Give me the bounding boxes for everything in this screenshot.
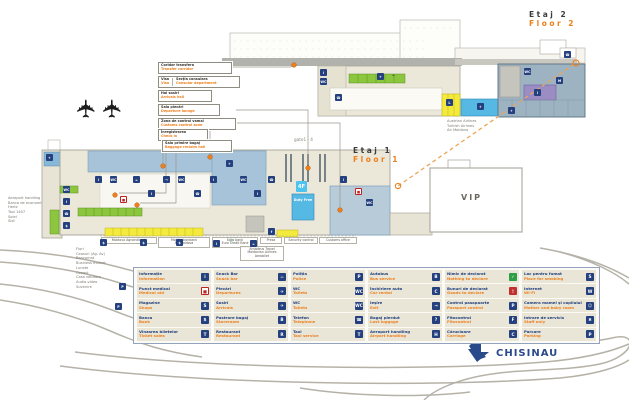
legend-item-fitocontrol: FitocontrolFitocontrolF bbox=[445, 313, 519, 326]
information-icon: i bbox=[201, 273, 209, 281]
legend-item-snack-bar: Snack BarSnack bar☕ bbox=[214, 270, 288, 283]
legend-item-luggage-storage: Pastrare bagajStoreroomB bbox=[214, 313, 288, 326]
map-wc-icon: WC bbox=[366, 199, 373, 206]
legend-item-departures: PlecăriDepartures✈ bbox=[214, 284, 288, 297]
map-departures-icon: ✈ bbox=[508, 107, 515, 114]
bank-icon: $ bbox=[201, 316, 209, 324]
legend-item-medical-aid: Punct medicalMedical aid■ bbox=[137, 284, 211, 297]
lost-luggage-icon: ? bbox=[432, 316, 440, 324]
map-wc-icon: WC bbox=[524, 68, 531, 75]
legend-item-wc-men: WCToiletsWC bbox=[291, 284, 365, 297]
list-line: Sixt bbox=[8, 219, 60, 224]
legend-label: Snack BarSnack bar bbox=[216, 272, 238, 281]
legend-column-4: AutobusBus serviceBÎnchiriere autoCar re… bbox=[368, 270, 442, 341]
map-information-icon: i bbox=[534, 89, 541, 96]
map-telephone-icon: ☎ bbox=[63, 210, 70, 217]
map-snack-bar-icon: ☕ bbox=[390, 71, 397, 78]
legend-label: WCToilets bbox=[293, 301, 307, 310]
callout-4: Sala plecăriDeparture lounge bbox=[158, 104, 220, 116]
telephone-icon: ☎ bbox=[355, 316, 363, 324]
legend-item-information: InformațieInformationi bbox=[137, 270, 211, 283]
map-bank-icon: $ bbox=[63, 222, 70, 229]
map-wc-icon: WC bbox=[240, 176, 247, 183]
bus-icon: B bbox=[432, 273, 440, 281]
map-wc-icon: WC bbox=[110, 176, 117, 183]
legend-item-mother-baby-room: Camera mamei şi copiluluiMother and baby… bbox=[522, 299, 596, 312]
callout-3: Hol sosiriArrivals hall bbox=[158, 90, 212, 102]
car-rental-icon: C bbox=[432, 287, 440, 295]
shops-icon: S bbox=[201, 302, 209, 310]
floor1-label: Etaj 1 Floor 1 bbox=[353, 146, 400, 165]
legend-label: Pastrare bagajStoreroom bbox=[216, 316, 248, 325]
legend-item-arrivals: SosiriArrivals✈ bbox=[214, 299, 288, 312]
legend-label: IeşireExit bbox=[370, 301, 382, 310]
snack-bar-icon: ☕ bbox=[278, 273, 286, 281]
floor1-plan bbox=[42, 140, 522, 244]
wc-men-icon: WC bbox=[355, 287, 363, 295]
legend-label: Nimic de declaratNothing to declare bbox=[447, 272, 488, 281]
map-parking-icon: P bbox=[115, 303, 122, 310]
legend-item-police: PolițiaPoliceP bbox=[291, 270, 365, 283]
floor2-airlines-note: Austrian AirlinesTurkish AirlinesAir Mol… bbox=[447, 119, 476, 133]
luggage-storage-icon: B bbox=[278, 316, 286, 324]
legend-label: Vînzarea biletelorTicket sales bbox=[139, 330, 178, 339]
map-information-icon: i bbox=[320, 69, 327, 76]
map-parking-icon: P bbox=[119, 283, 126, 290]
legend-item-smoking-area: Loc pentru fumatPlace for smokingS bbox=[522, 270, 596, 283]
legend-label: Închiriere autoCar rental bbox=[370, 287, 402, 296]
parking-icon: P bbox=[586, 330, 594, 338]
map-information-icon: i bbox=[340, 176, 347, 183]
wc-women-icon: WC bbox=[355, 302, 363, 310]
floor1-label-en: Floor 1 bbox=[353, 155, 400, 164]
gate-label: gate1 - 4 bbox=[294, 137, 313, 142]
map-information-icon: i bbox=[213, 240, 220, 247]
map-snack-bar-icon: ☕ bbox=[250, 240, 257, 247]
legend-item-lost-luggage: Bagaj pierdutLost luggage? bbox=[368, 313, 442, 326]
map-telephone-icon: ☎ bbox=[194, 190, 201, 197]
legend-label: BancaBank bbox=[139, 316, 152, 325]
tenant-label: Moldova Agroindbank bbox=[101, 237, 157, 244]
floor2-label-en: Floor 2 bbox=[529, 19, 576, 28]
legend-item-airport-handling: Aeroport handlingAirport handlingH bbox=[368, 328, 442, 341]
legend-item-goods-to-declare: Bunuri de declaratGoods to declare! bbox=[445, 284, 519, 297]
map-departures-icon: ✈ bbox=[377, 73, 384, 80]
trolleys-icon: C bbox=[509, 330, 517, 338]
airplane-icon: ✈ bbox=[72, 98, 101, 119]
map-bank-icon: $ bbox=[100, 239, 107, 246]
callout-text: Secția consularaConsular department bbox=[172, 78, 217, 86]
map-telephone-icon: ☎ bbox=[564, 51, 571, 58]
restaurant-icon: R bbox=[278, 330, 286, 338]
legend-item-bus: AutobusBus serviceB bbox=[368, 270, 442, 283]
smoking-area-icon: S bbox=[586, 273, 594, 281]
callout-text: ÎnregistrareaCheck in bbox=[161, 131, 186, 139]
callout-1: Coridor transferaTransfer corridor bbox=[158, 62, 232, 74]
shops-list-2: LuneteConactCasa valutaraAudio-videoSuve… bbox=[76, 266, 101, 289]
mother-baby-room-icon: ☺ bbox=[586, 302, 594, 310]
medical-aid-icon: ■ bbox=[201, 287, 209, 295]
map-social-icon: f bbox=[268, 228, 275, 235]
legend-label: AutobusBus service bbox=[370, 272, 395, 281]
map-information-icon: i bbox=[254, 190, 261, 197]
map-snack-bar-icon: ☕ bbox=[133, 176, 140, 183]
tenant-label: MoldindconbankAir Moldova bbox=[158, 237, 210, 248]
police-icon: P bbox=[355, 273, 363, 281]
passport-control-icon: P bbox=[509, 302, 517, 310]
fitocontrol-icon: F bbox=[509, 316, 517, 324]
legend-column-2: Snack BarSnack bar☕PlecăriDepartures✈Sos… bbox=[214, 270, 288, 341]
legend-label: InternetWi-Fi bbox=[524, 287, 542, 296]
legend-item-exit: IeşireExit→ bbox=[368, 299, 442, 312]
callout-text: VisaVisa bbox=[161, 78, 169, 86]
list-line: Audio-video bbox=[76, 280, 101, 285]
legend-column-5: Nimic de declaratNothing to declare✓Bunu… bbox=[445, 270, 519, 341]
map-departures-icon: ✈ bbox=[477, 103, 484, 110]
wifi-icon: W bbox=[586, 287, 594, 295]
legend-label: FitocontrolFitocontrol bbox=[447, 316, 471, 325]
map-wc-icon: WC bbox=[320, 78, 327, 85]
map-wc-icon: WC bbox=[63, 186, 70, 193]
list-line: Suvenire bbox=[76, 285, 101, 290]
map-information-icon: i bbox=[63, 198, 70, 205]
legend-item-nothing-to-declare: Nimic de declaratNothing to declare✓ bbox=[445, 270, 519, 283]
legend-item-passport-control: Control pasapoartePassport controlP bbox=[445, 299, 519, 312]
legend-item-staff-entrance: Intrare de serviciuStaff only✖ bbox=[522, 313, 596, 326]
chisinau-arrow-icon bbox=[468, 343, 489, 362]
legend-label: Bunuri de declaratGoods to declare bbox=[447, 287, 488, 296]
map-mother-baby-icon: M bbox=[556, 77, 563, 84]
legend-label: Control pasapoartePassport control bbox=[447, 301, 489, 310]
duty-free-label: Duty Free bbox=[293, 198, 313, 202]
legend-item-parking: ParcareParkingP bbox=[522, 328, 596, 341]
ticket-sales-icon: T bbox=[201, 330, 209, 338]
callout-2: VisaVisaSecția consularaConsular departm… bbox=[158, 76, 240, 88]
legend-label: ParcareParking bbox=[524, 330, 541, 339]
goods-to-declare-icon: ! bbox=[509, 287, 517, 295]
vip-label: VIP bbox=[461, 193, 482, 202]
legend: InformațieInformationiPunct medicalMedic… bbox=[133, 267, 600, 344]
airport-handling-icon: H bbox=[432, 330, 440, 338]
legend-label: Punct medicalMedical aid bbox=[139, 287, 170, 296]
legend-label: SosiriArrivals bbox=[216, 301, 233, 310]
floor2-label: Etaj 2 Floor 2 bbox=[529, 10, 576, 29]
list-line: Air Moldova bbox=[447, 128, 476, 133]
city-label: CHISINAU bbox=[496, 348, 558, 359]
map-arrivals-icon: ✈ bbox=[46, 154, 53, 161]
map-bank-icon: $ bbox=[140, 239, 147, 246]
map-information-icon: i bbox=[210, 176, 217, 183]
legend-label: PlecăriDepartures bbox=[216, 287, 241, 296]
exit-icon: → bbox=[432, 302, 440, 310]
callout-text: Zona de control vamalCustoms control zon… bbox=[161, 120, 204, 128]
callout-text: Sala primire bagajBaggage reclaim hall bbox=[165, 142, 205, 150]
floor2-label-ro: Etaj 2 bbox=[529, 10, 576, 19]
legend-item-trolleys: CărucioareCarriageC bbox=[445, 328, 519, 341]
map-wc-icon: WC bbox=[178, 176, 185, 183]
map-information-icon: i bbox=[148, 190, 155, 197]
nothing-to-declare-icon: ✓ bbox=[509, 273, 517, 281]
airplane-icon: ✈ bbox=[98, 98, 127, 119]
taxi-icon: T bbox=[355, 330, 363, 338]
tenant-label: Customs office bbox=[319, 237, 357, 244]
shops-list: FloriCeasuri (Ag. Av)BancomatBusiness ma… bbox=[76, 247, 106, 266]
services-list: Aeroport handlingBanca de economiiHertzT… bbox=[8, 196, 60, 224]
departures-icon: ✈ bbox=[278, 287, 286, 295]
legend-label: Bagaj pierdutLost luggage bbox=[370, 316, 400, 325]
legend-column-6: Loc pentru fumatPlace for smokingSIntern… bbox=[522, 270, 596, 341]
callout-text: Coridor transferaTransfer corridor bbox=[161, 64, 194, 72]
legend-label: TaxiTaxi service bbox=[293, 330, 319, 339]
legend-item-restaurant: RestaurantRestaurantR bbox=[214, 328, 288, 341]
map-medical-icon: ■ bbox=[120, 196, 127, 203]
callout-text: Sala plecăriDeparture lounge bbox=[161, 106, 195, 114]
tenant-label: Presa bbox=[260, 237, 282, 244]
map-gate-lift-icon: 4F bbox=[296, 181, 307, 192]
legend-item-wifi: InternetWi-FiW bbox=[522, 284, 596, 297]
tenant-label: Amadeus TravelMoldavian AirlinesAerobile… bbox=[240, 246, 284, 261]
legend-label: Intrare de serviciuStaff only bbox=[524, 316, 564, 325]
legend-column-3: PolițiaPolicePWCToiletsWCWCToiletsWCTele… bbox=[291, 270, 365, 341]
legend-label: CărucioareCarriage bbox=[447, 330, 471, 339]
legend-label: PolițiaPolice bbox=[293, 272, 307, 281]
map-exit-icon: → bbox=[163, 176, 170, 183]
legend-label: WCToilets bbox=[293, 287, 307, 296]
legend-item-taxi: TaxiTaxi serviceT bbox=[291, 328, 365, 341]
map-information-icon: i bbox=[95, 176, 102, 183]
tenant-label: Security control bbox=[284, 237, 318, 244]
map-telephone-icon: ☎ bbox=[335, 94, 342, 101]
legend-label: RestaurantRestaurant bbox=[216, 330, 240, 339]
map-departures-icon: ✈ bbox=[226, 160, 233, 167]
map-lift-icon: L bbox=[446, 99, 453, 106]
list-line: Austrian Airlines bbox=[447, 119, 476, 124]
legend-label: Loc pentru fumatPlace for smoking bbox=[524, 272, 563, 281]
callout-7: Sala primire bagajBaggage reclaim hall bbox=[162, 140, 232, 152]
legend-label: InformațieInformation bbox=[139, 272, 165, 281]
legend-item-wc-women: WCToiletsWC bbox=[291, 299, 365, 312]
legend-item-car-rental: Închiriere autoCar rentalC bbox=[368, 284, 442, 297]
legend-item-bank: BancaBank$ bbox=[137, 313, 211, 326]
legend-item-ticket-sales: Vînzarea biletelorTicket salesT bbox=[137, 328, 211, 341]
floor1-label-ro: Etaj 1 bbox=[353, 146, 400, 155]
airport-map: Etaj 2 Floor 2 Etaj 1 Floor 1 gate1 - 4 … bbox=[0, 0, 629, 400]
list-line: Business market bbox=[76, 261, 106, 266]
legend-label: MagazineShops bbox=[139, 301, 160, 310]
legend-label: TelefonTelephone bbox=[293, 316, 315, 325]
map-medical-icon: ■ bbox=[355, 188, 362, 195]
map-bank-icon: $ bbox=[176, 239, 183, 246]
legend-item-telephone: TelefonTelephone☎ bbox=[291, 313, 365, 326]
callout-text: Hol sosiriArrivals hall bbox=[161, 92, 184, 100]
arrivals-icon: ✈ bbox=[278, 302, 286, 310]
map-telephone-icon: ☎ bbox=[268, 176, 275, 183]
legend-label: Camera mamei şi copiluluiMother and baby… bbox=[524, 301, 582, 310]
staff-entrance-icon: ✖ bbox=[586, 316, 594, 324]
legend-label: Aeroport handlingAirport handling bbox=[370, 330, 410, 339]
legend-item-shops: MagazineShopsS bbox=[137, 299, 211, 312]
legend-column-1: InformațieInformationiPunct medicalMedic… bbox=[137, 270, 211, 341]
